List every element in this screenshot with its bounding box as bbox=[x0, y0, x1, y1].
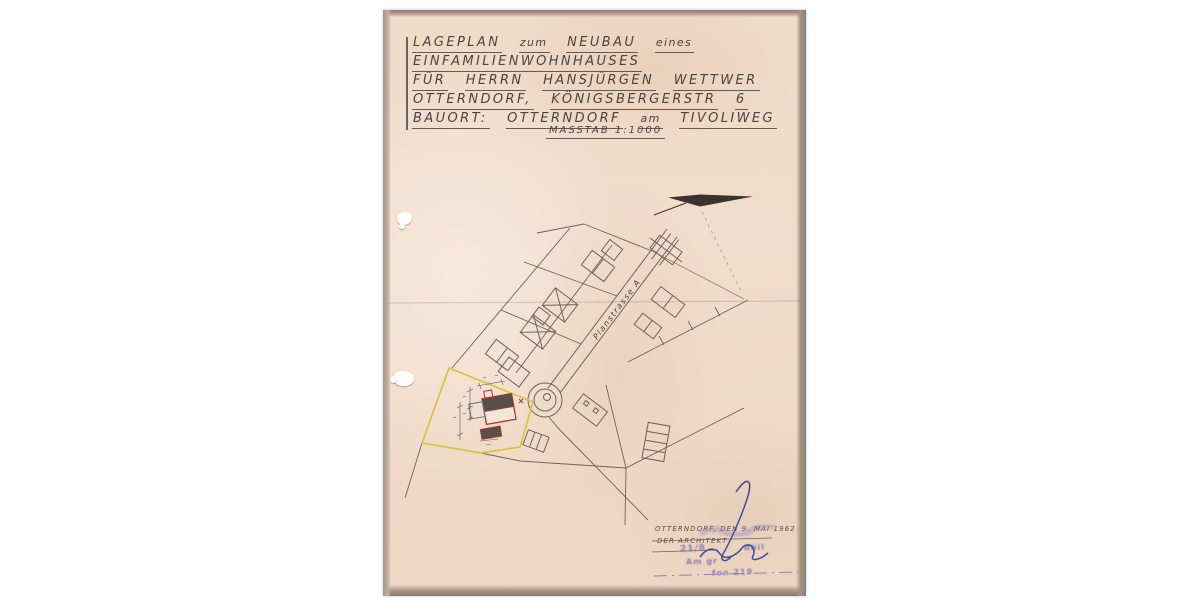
ink-layer bbox=[0, 0, 1200, 600]
punch-hole bbox=[394, 371, 414, 386]
architect-signature bbox=[700, 481, 768, 560]
stamp-dash-rule bbox=[654, 572, 798, 576]
scanned-document-page: Planstrasse A bbox=[0, 0, 1200, 600]
